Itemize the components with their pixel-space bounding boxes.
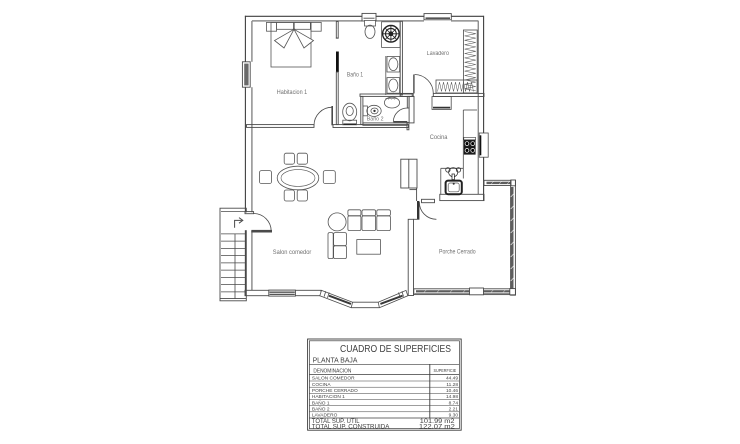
svg-text:PLANTA BAJA: PLANTA BAJA xyxy=(313,356,359,365)
svg-text:Porche Cerrado: Porche Cerrado xyxy=(439,250,476,256)
svg-text:11.28: 11.28 xyxy=(446,382,458,388)
svg-text:Baño 1: Baño 1 xyxy=(347,71,364,78)
svg-text:HABITACION 1: HABITACION 1 xyxy=(312,394,345,400)
svg-text:SALON COMEDOR: SALON COMEDOR xyxy=(312,376,355,382)
svg-text:BAÑO 2: BAÑO 2 xyxy=(312,406,330,413)
svg-text:Lavadero: Lavadero xyxy=(427,51,450,57)
svg-text:SUPERFICIE: SUPERFICIE xyxy=(434,368,457,373)
svg-text:DENOMINACION: DENOMINACION xyxy=(313,368,351,374)
svg-text:2.21: 2.21 xyxy=(449,407,459,413)
svg-text:Cocina: Cocina xyxy=(430,134,448,141)
svg-text:Baño 2: Baño 2 xyxy=(367,117,384,123)
svg-text:BAÑO 1: BAÑO 1 xyxy=(312,399,330,406)
svg-text:Habitacion 1: Habitacion 1 xyxy=(277,89,308,96)
svg-text:COCINA: COCINA xyxy=(312,382,331,388)
svg-text:CUADRO DE SUPERFICIES: CUADRO DE SUPERFICIES xyxy=(340,344,451,355)
svg-text:PORCHE CERRADO: PORCHE CERRADO xyxy=(312,388,358,394)
svg-text:14.98: 14.98 xyxy=(446,394,458,400)
svg-text:Salon comedor: Salon comedor xyxy=(273,249,312,256)
svg-text:TOTAL SUP. CONSTRUIDA: TOTAL SUP. CONSTRUIDA xyxy=(312,424,390,431)
svg-text:122.07 m2: 122.07 m2 xyxy=(419,424,455,431)
svg-text:10.46: 10.46 xyxy=(446,388,458,394)
svg-text:8.74: 8.74 xyxy=(449,400,459,406)
svg-text:44.49: 44.49 xyxy=(446,376,458,382)
